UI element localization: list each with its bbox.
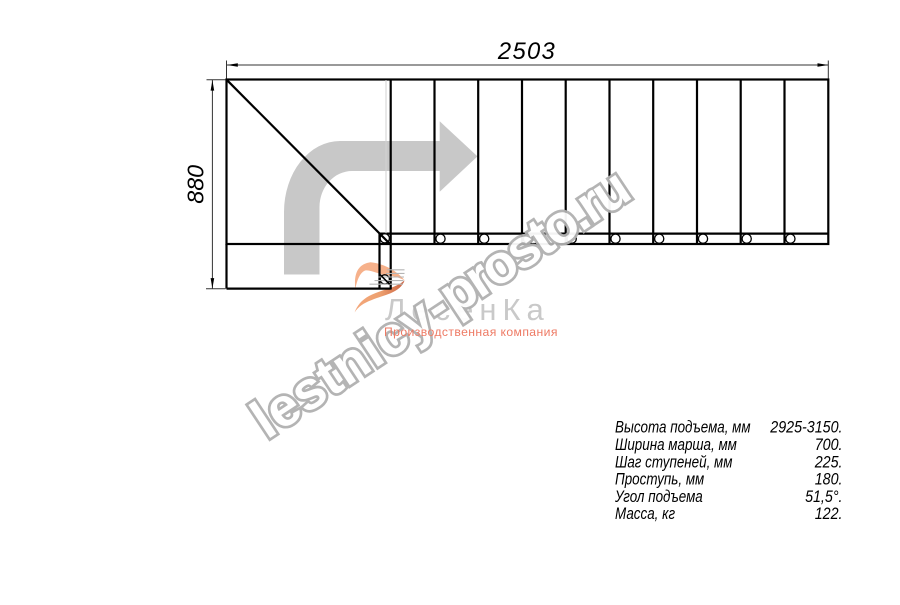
svg-text:225.: 225. (814, 453, 843, 471)
svg-text:122.: 122. (815, 505, 843, 523)
svg-text:Производственная компания: Производственная компания (384, 325, 558, 339)
svg-text:700.: 700. (815, 436, 843, 454)
svg-text:2925-3150.: 2925-3150. (769, 419, 842, 437)
svg-text:Масса, кг: Масса, кг (615, 505, 675, 524)
svg-text:Шаг ступеней, мм: Шаг ступеней, мм (615, 453, 733, 472)
svg-text:880: 880 (183, 165, 209, 204)
svg-text:lestnicy-: lestnicy- (240, 275, 461, 450)
svg-text:Высота подъема, мм: Высота подъема, мм (615, 418, 751, 437)
svg-text:2503: 2503 (497, 38, 556, 65)
svg-text:Ширина марша, мм: Ширина марша, мм (615, 436, 737, 455)
svg-text:180.: 180. (815, 471, 843, 489)
svg-text:51,5°.: 51,5°. (805, 488, 842, 506)
svg-text:Угол подъема: Угол подъема (614, 487, 703, 506)
svg-text:Проступь, мм: Проступь, мм (615, 470, 705, 489)
